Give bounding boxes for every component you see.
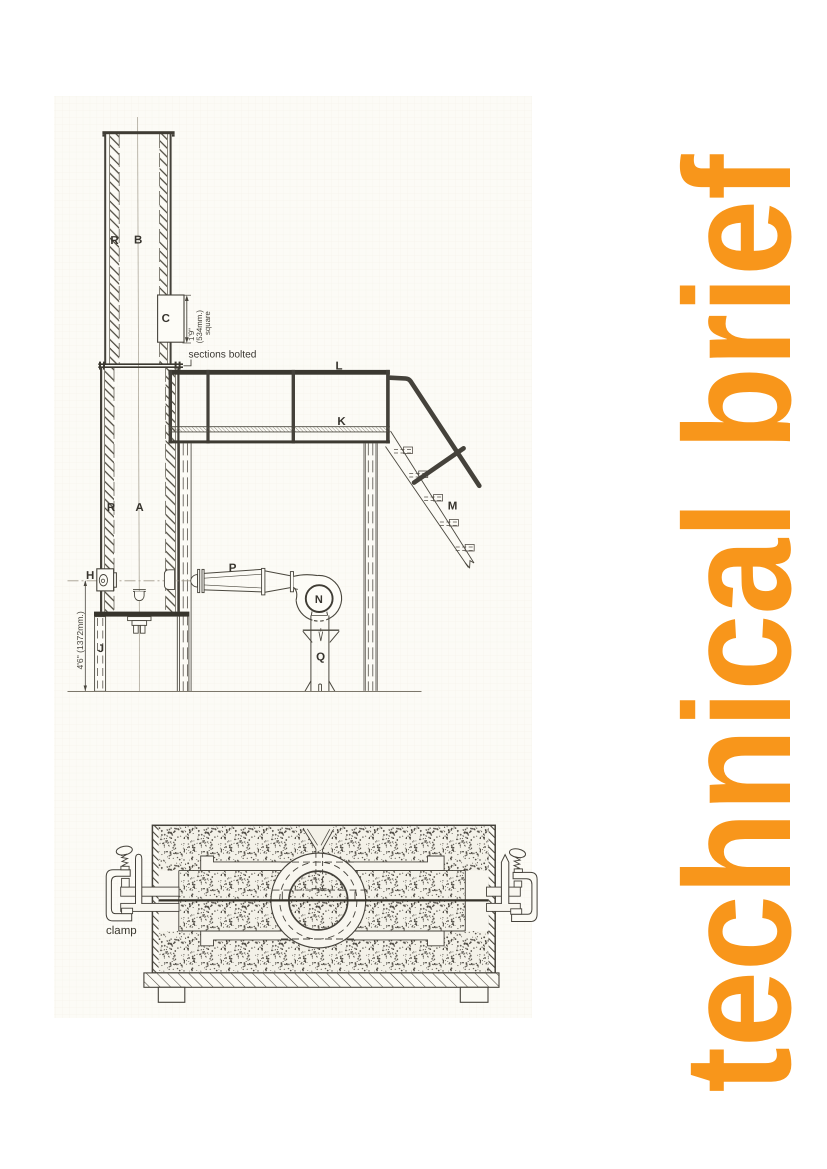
svg-text:Q: Q [316, 651, 325, 663]
svg-text:R: R [107, 502, 116, 514]
svg-text:R: R [110, 235, 119, 247]
svg-text:J: J [98, 643, 104, 655]
svg-text:sections bolted: sections bolted [189, 349, 257, 360]
svg-text:A: A [135, 502, 143, 514]
svg-text:N: N [315, 594, 323, 606]
svg-text:H: H [86, 570, 94, 582]
svg-text:clamp: clamp [106, 925, 137, 937]
svg-text:C: C [162, 313, 170, 325]
svg-text:M: M [448, 501, 458, 513]
svg-text:technical brief: technical brief [653, 154, 823, 1092]
svg-text:square: square [203, 311, 212, 335]
svg-text:K: K [337, 416, 346, 428]
svg-text:P: P [229, 563, 237, 575]
svg-text:4'6" (1372mm.): 4'6" (1372mm.) [75, 611, 85, 669]
svg-text:B: B [134, 234, 142, 246]
svg-text:L: L [335, 360, 342, 372]
